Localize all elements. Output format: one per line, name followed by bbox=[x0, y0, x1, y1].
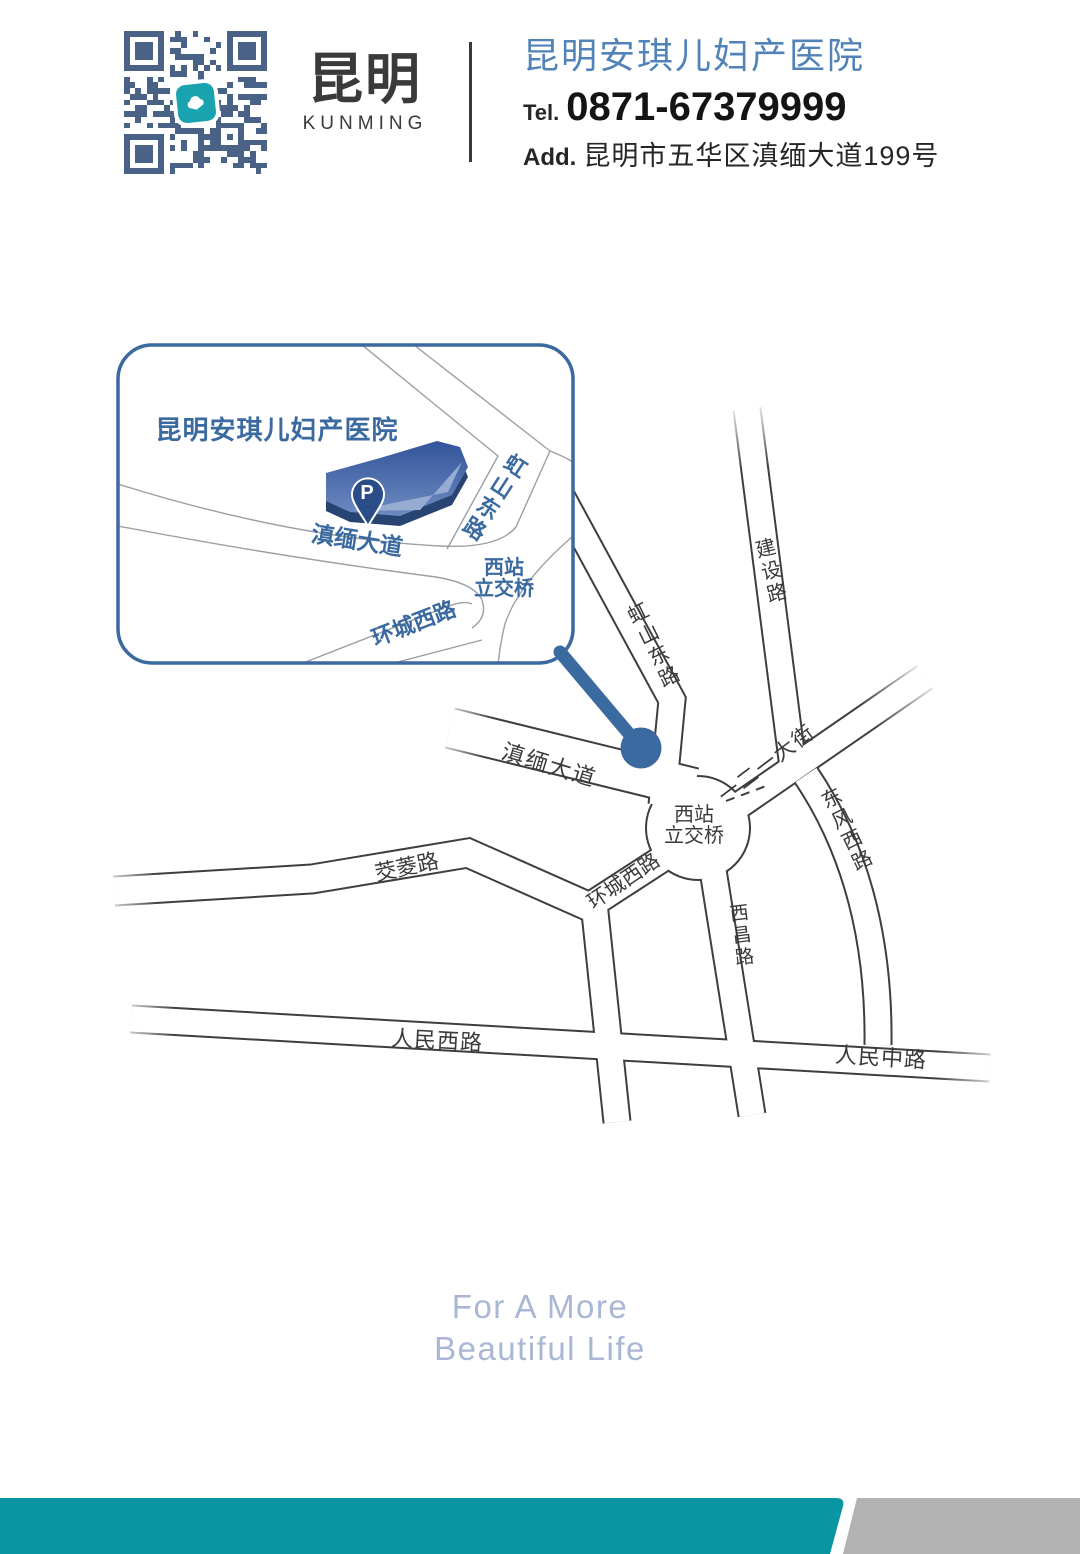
flyer-page: 昆明 KUNMING 昆明安琪儿妇产医院 Tel. 0871-67379999 … bbox=[0, 0, 1080, 1554]
contact-block: 昆明安琪儿妇产医院 Tel. 0871-67379999 Add. 昆明市五华区… bbox=[523, 36, 1043, 173]
junction-label-line2: 立交桥 bbox=[664, 826, 724, 847]
brand-block: 昆明 KUNMING bbox=[295, 52, 435, 135]
cloud-icon bbox=[181, 88, 210, 117]
tel-label: Tel. bbox=[523, 100, 559, 126]
address-label: Add. bbox=[523, 144, 576, 172]
footer-teal-bar bbox=[0, 1498, 843, 1554]
footer-gray-bar bbox=[843, 1498, 1080, 1554]
address-row: Add. 昆明市五华区滇缅大道199号 bbox=[523, 134, 1043, 173]
qr-center-logo bbox=[175, 82, 217, 124]
address-text: 昆明市五华区滇缅大道199号 bbox=[583, 134, 939, 173]
brand-city-en: KUNMING bbox=[295, 113, 435, 135]
slogan-line2: Beautiful Life bbox=[0, 1328, 1080, 1370]
slogan-line1: For A More bbox=[0, 1286, 1080, 1328]
inset-map bbox=[118, 345, 573, 674]
road-label-renmin-mid: 人民中路 bbox=[834, 1044, 927, 1072]
tel-number: 0871-67379999 bbox=[566, 87, 846, 127]
inset-hospital-label: 昆明安琪儿妇产医院 bbox=[155, 417, 398, 443]
slogan: For A More Beautiful Life bbox=[0, 1286, 1080, 1370]
parking-label: P bbox=[360, 483, 373, 503]
qr-code bbox=[124, 31, 267, 174]
location-dot bbox=[621, 728, 662, 769]
header-divider bbox=[469, 42, 472, 162]
tel-row: Tel. 0871-67379999 bbox=[523, 87, 1043, 127]
inset-junction-label-line2: 立交桥 bbox=[474, 579, 534, 600]
junction-label-line1: 西站 bbox=[664, 805, 724, 826]
road-label-renmin-west: 人民西路 bbox=[390, 1028, 483, 1055]
hospital-name: 昆明安琪儿妇产医院 bbox=[523, 36, 1043, 76]
brand-city-cn: 昆明 bbox=[295, 52, 435, 107]
inset-junction-label-line1: 西站 bbox=[474, 558, 534, 579]
